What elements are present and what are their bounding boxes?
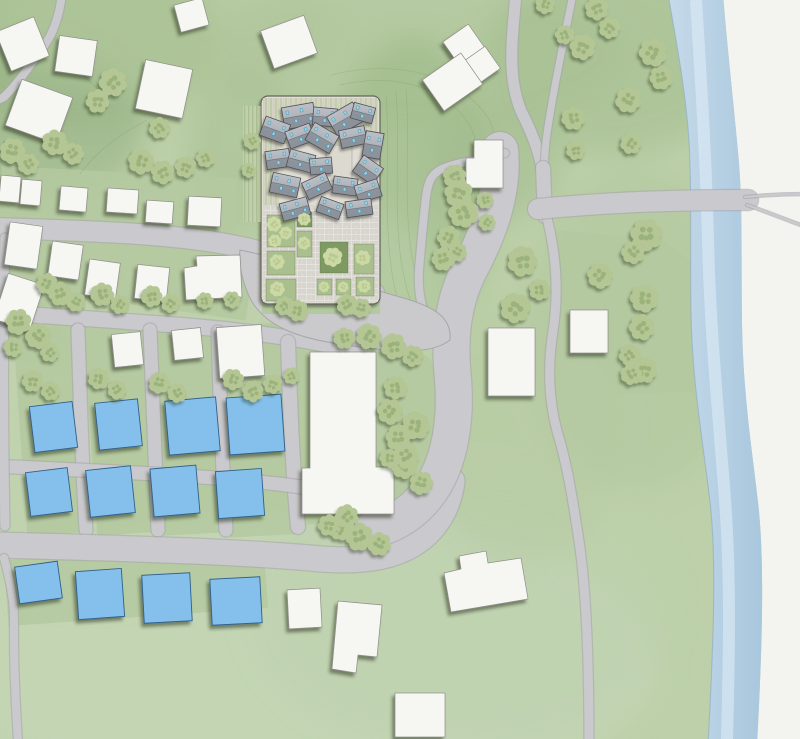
skylight [343,132,346,136]
site-plan [0,0,800,739]
highlight-building [226,394,285,455]
building [395,693,445,737]
highlight-building [75,568,124,619]
skylight [326,160,329,164]
building [172,328,204,361]
highlight-building [165,397,221,455]
building [55,36,98,77]
skylight [283,152,286,156]
skylight [287,179,290,183]
building [570,310,608,353]
skylight [295,119,298,123]
skylight [269,154,272,158]
highlight-building [215,468,264,518]
highlight-building [29,402,77,453]
skylight [309,117,312,121]
building [135,60,192,119]
building [488,328,535,396]
highlight-building [25,468,72,517]
building [4,222,43,269]
highlight-building [86,466,136,517]
skylight [351,181,354,185]
building [287,588,322,629]
project-site [243,96,384,304]
building [106,188,139,214]
skylight [378,138,381,142]
building [0,175,21,203]
highlight-building [142,573,192,623]
skylight [358,129,361,133]
skylight [300,108,303,112]
skylight [277,161,280,165]
building [187,196,221,227]
roof [345,198,373,217]
building [59,186,88,212]
skylight [286,111,289,115]
skylight [349,203,352,207]
skylight [279,186,282,190]
skylight [337,179,340,183]
skylight [275,176,278,180]
building [20,179,42,206]
skylight [365,201,368,205]
highlight-building [95,399,143,450]
building [111,332,143,368]
highlight-building [210,577,262,626]
skylight [367,136,370,140]
skylight [352,139,355,143]
skylight [317,110,320,114]
highlight-building [150,465,200,517]
roof [309,157,332,175]
highlight-building [15,561,63,604]
site-plan-canvas [0,0,800,739]
skylight [292,189,295,193]
building [48,241,84,280]
skylight [358,209,361,213]
skylight [371,148,374,152]
skylight [320,167,323,171]
skylight [323,119,326,123]
building [216,324,264,378]
building [145,200,173,224]
skylight [343,188,346,192]
skylight [313,161,316,165]
